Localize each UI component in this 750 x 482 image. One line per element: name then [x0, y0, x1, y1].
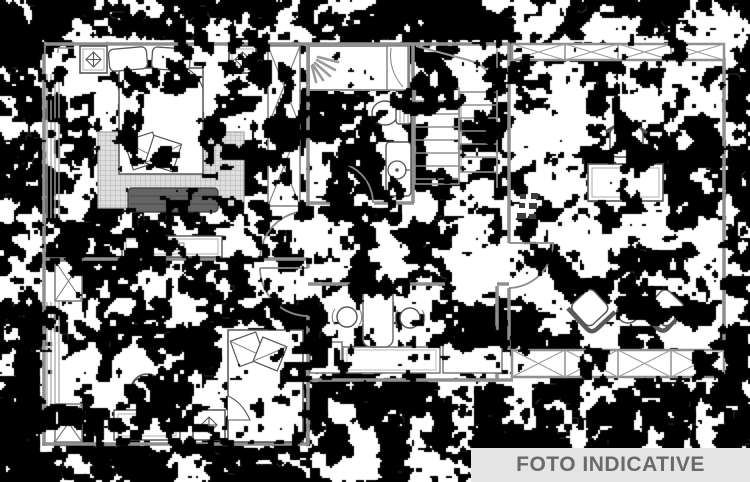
dither-noise-overlay: [0, 0, 750, 482]
floor-plan-photo: FOTO INDICATIVE: [0, 0, 750, 482]
photo-indicative-banner: FOTO INDICATIVE: [471, 448, 750, 482]
